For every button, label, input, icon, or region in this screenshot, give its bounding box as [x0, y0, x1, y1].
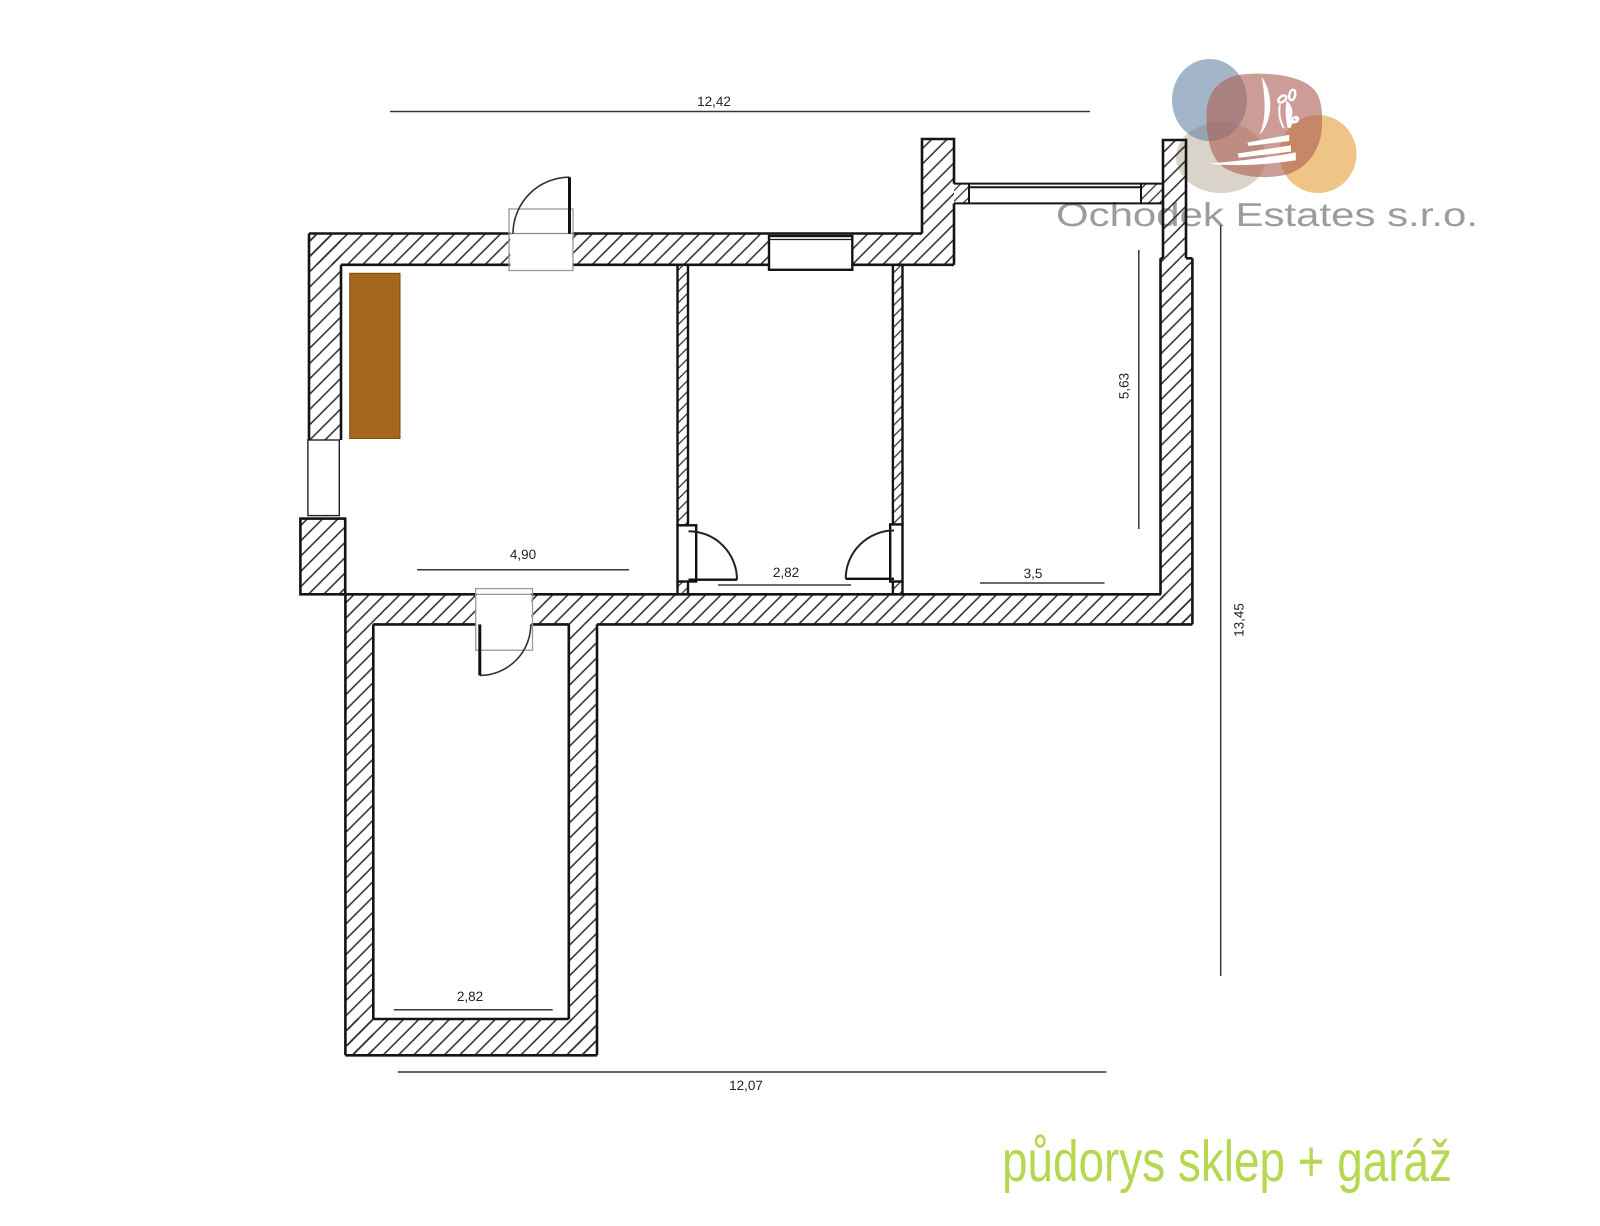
svg-text:půdorys sklep + garáž: půdorys sklep + garáž [1002, 1129, 1452, 1194]
svg-text:12,42: 12,42 [697, 94, 731, 109]
svg-text:4,90: 4,90 [510, 547, 536, 562]
svg-text:2,82: 2,82 [773, 565, 799, 580]
svg-text:13,45: 13,45 [1232, 603, 1247, 637]
svg-text:12,07: 12,07 [729, 1078, 763, 1093]
svg-text:2,82: 2,82 [457, 989, 483, 1004]
svg-text:3,5: 3,5 [1024, 566, 1043, 581]
svg-text:5,63: 5,63 [1117, 373, 1132, 399]
svg-text:Ochodek Estates s.r.o.: Ochodek Estates s.r.o. [1056, 196, 1478, 233]
